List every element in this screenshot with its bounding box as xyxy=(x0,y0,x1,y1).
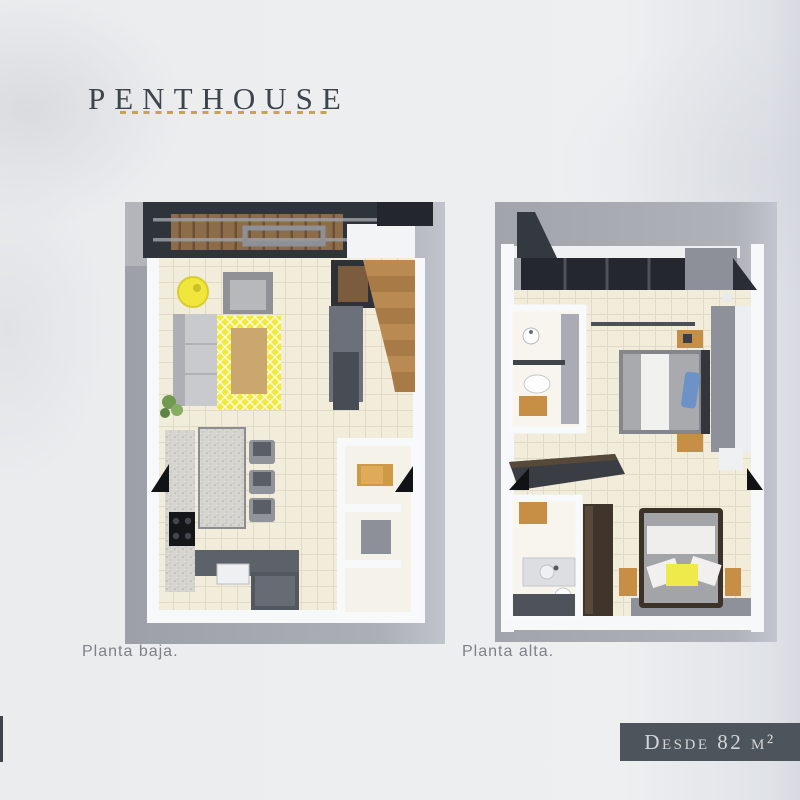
floor-plan-upper-image xyxy=(495,202,777,642)
area-badge-label: Desde 82 m² xyxy=(644,730,775,755)
floor-plan-ground xyxy=(125,202,445,644)
left-edge-artifact xyxy=(0,716,3,762)
caption-planta-baja: Planta baja. xyxy=(82,643,179,661)
plan1-cooktop xyxy=(169,512,195,546)
plan2-nightstand xyxy=(619,568,637,596)
plan1-armchair xyxy=(223,272,273,314)
plan2-shower xyxy=(513,594,575,616)
plan1-bar-stools xyxy=(249,440,275,522)
plan1-terrace xyxy=(125,202,433,266)
floor-plan-upper xyxy=(495,202,777,642)
caption-planta-alta: Planta alta. xyxy=(462,643,554,661)
plan1-bathroom xyxy=(341,442,415,616)
plan2-bathroom-2 xyxy=(509,498,579,616)
plan2-nightstand xyxy=(677,434,703,452)
plan2-wood-cabinet-2 xyxy=(519,502,547,524)
plan2-toilet-1 xyxy=(524,375,550,393)
plan2-wood-cabinet-1 xyxy=(519,396,547,416)
title-divider xyxy=(120,111,332,114)
plan1-coffee-table xyxy=(231,328,267,394)
plan2-yellow-pillow xyxy=(666,564,698,586)
plan1-fridge xyxy=(251,572,299,610)
plan2-nightstand xyxy=(725,568,741,596)
plan1-sink xyxy=(217,564,249,584)
plan1-sofa xyxy=(173,314,217,406)
plan2-bathroom-1 xyxy=(509,308,583,430)
plan2-master-bed xyxy=(619,350,710,434)
plan1-side-table xyxy=(178,277,208,307)
plan2-bed-2 xyxy=(639,508,723,608)
area-badge: Desde 82 m² xyxy=(620,723,800,761)
floor-plan-ground-image xyxy=(125,202,445,644)
